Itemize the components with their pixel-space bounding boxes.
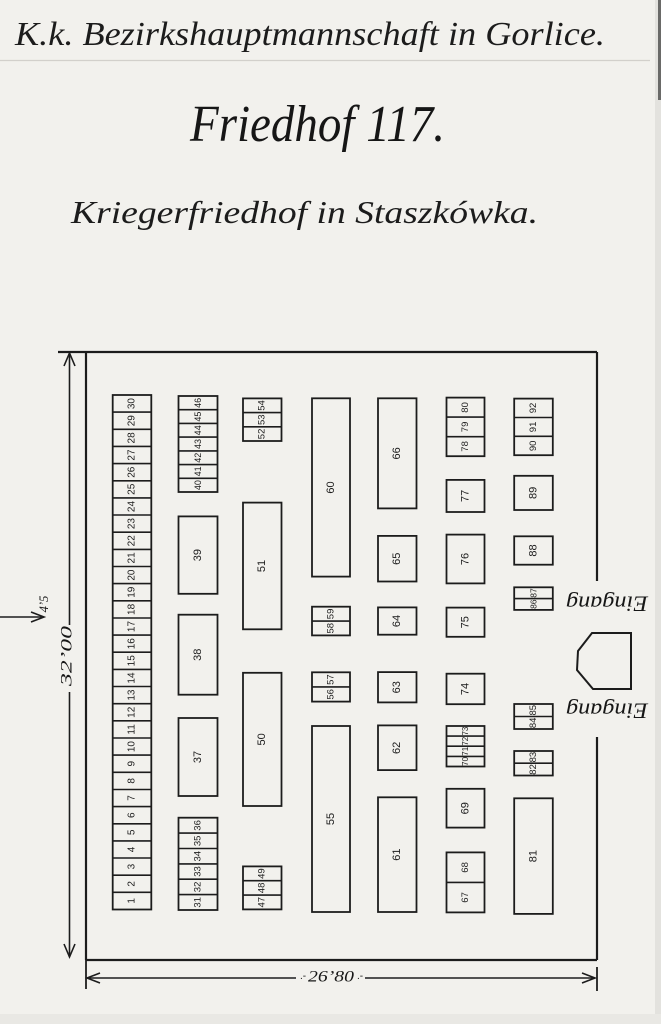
svg-text:61: 61 (391, 848, 403, 860)
svg-text:65: 65 (391, 553, 403, 565)
svg-text:.-: .- (357, 971, 363, 982)
svg-text:49: 49 (257, 868, 268, 879)
svg-text:21: 21 (127, 552, 138, 564)
svg-text:63: 63 (391, 681, 403, 693)
svg-text:42: 42 (193, 453, 203, 463)
svg-text:51: 51 (256, 560, 268, 572)
svg-text:28: 28 (127, 432, 138, 444)
svg-text:36: 36 (193, 820, 204, 831)
svg-text:7: 7 (127, 795, 138, 801)
svg-text:62: 62 (391, 742, 403, 754)
svg-text:41: 41 (193, 466, 203, 476)
svg-text:19: 19 (127, 586, 138, 598)
svg-text:38: 38 (192, 649, 204, 661)
svg-text:Eingang: Eingang (566, 592, 649, 617)
svg-text:26: 26 (127, 466, 138, 478)
svg-text:88: 88 (528, 544, 540, 556)
svg-text:89: 89 (528, 487, 540, 499)
svg-text:45: 45 (193, 412, 203, 422)
svg-text:34: 34 (193, 851, 204, 862)
svg-text:K.k. Bezirkshauptmannschaft in: K.k. Bezirkshauptmannschaft in Gorlice. (14, 16, 605, 53)
svg-text:Kriegerfriedhof in Staszkówka.: Kriegerfriedhof in Staszkówka. (70, 195, 538, 230)
svg-text:48: 48 (257, 883, 268, 894)
svg-text:Eingang: Eingang (566, 699, 649, 724)
svg-text:77: 77 (460, 490, 472, 502)
svg-text:29: 29 (127, 415, 138, 427)
svg-text:9: 9 (127, 760, 138, 766)
svg-text:23: 23 (127, 518, 138, 530)
svg-text:78: 78 (460, 441, 471, 452)
svg-text:50: 50 (256, 733, 268, 745)
svg-text:52: 52 (257, 429, 268, 440)
svg-text:72: 72 (461, 736, 470, 745)
svg-text:43: 43 (193, 439, 203, 449)
svg-text:33: 33 (193, 866, 204, 877)
svg-text:44: 44 (193, 425, 203, 435)
svg-text:Friedhof 117.: Friedhof 117. (189, 96, 445, 153)
svg-text:14: 14 (127, 672, 138, 684)
svg-text:87: 87 (529, 588, 539, 598)
svg-text:18: 18 (127, 603, 138, 615)
svg-text:79: 79 (460, 422, 471, 433)
svg-text:30: 30 (127, 398, 138, 410)
svg-text:90: 90 (528, 441, 539, 452)
svg-text:67: 67 (460, 892, 471, 903)
svg-text:47: 47 (257, 897, 268, 908)
svg-text:80: 80 (460, 402, 471, 413)
svg-text:81: 81 (528, 850, 540, 862)
svg-text:32: 32 (193, 882, 204, 893)
svg-text:75: 75 (460, 616, 472, 628)
svg-text:4: 4 (127, 846, 138, 852)
svg-text:71: 71 (461, 746, 470, 755)
svg-text:57: 57 (326, 674, 337, 685)
svg-text:6: 6 (127, 812, 138, 818)
svg-text:11: 11 (127, 724, 138, 735)
svg-text:2: 2 (127, 881, 138, 887)
svg-text:10: 10 (127, 741, 138, 753)
svg-text:17: 17 (127, 621, 138, 633)
svg-text:92: 92 (528, 403, 539, 414)
svg-text:56: 56 (326, 689, 337, 700)
svg-text:84: 84 (528, 718, 539, 729)
svg-text:5: 5 (127, 829, 138, 835)
svg-text:53: 53 (257, 414, 268, 425)
svg-text:37: 37 (192, 751, 204, 763)
svg-text:8: 8 (127, 778, 138, 784)
svg-text:22: 22 (127, 535, 138, 547)
svg-text:58: 58 (326, 623, 337, 634)
svg-text:82: 82 (528, 764, 539, 775)
svg-text:73: 73 (461, 726, 470, 735)
svg-text:76: 76 (460, 553, 472, 565)
svg-text:46: 46 (193, 398, 203, 408)
svg-text:66: 66 (391, 447, 403, 459)
svg-text:24: 24 (127, 501, 138, 513)
svg-text:20: 20 (127, 569, 138, 581)
svg-text:25: 25 (127, 483, 138, 495)
svg-text:83: 83 (528, 752, 539, 763)
svg-text:64: 64 (391, 615, 403, 627)
svg-text:85: 85 (528, 705, 539, 716)
svg-text:40: 40 (193, 480, 203, 490)
svg-text:39: 39 (192, 549, 204, 561)
svg-text:13: 13 (127, 689, 138, 701)
svg-text:27: 27 (127, 449, 138, 461)
svg-text:31: 31 (193, 897, 204, 908)
svg-text:.-: .- (300, 971, 306, 982)
svg-text:26’80: 26’80 (308, 969, 354, 986)
svg-text:86: 86 (529, 599, 539, 609)
svg-text:35: 35 (193, 836, 204, 847)
svg-text:60: 60 (325, 481, 337, 493)
svg-text:12: 12 (127, 706, 138, 718)
svg-text:69: 69 (460, 802, 472, 814)
svg-text:54: 54 (257, 400, 268, 411)
svg-text:68: 68 (460, 862, 471, 873)
svg-text:3: 3 (127, 863, 138, 869)
svg-text:91: 91 (528, 422, 539, 433)
svg-text:1: 1 (127, 898, 138, 904)
svg-text:74: 74 (460, 683, 472, 695)
svg-text:16: 16 (127, 638, 138, 650)
svg-text:32’00: 32’00 (59, 626, 76, 688)
svg-text:15: 15 (127, 655, 138, 667)
svg-text:70: 70 (461, 756, 470, 765)
svg-text:59: 59 (326, 609, 337, 620)
svg-text:55: 55 (325, 813, 337, 825)
svg-text:4’5: 4’5 (37, 596, 51, 613)
